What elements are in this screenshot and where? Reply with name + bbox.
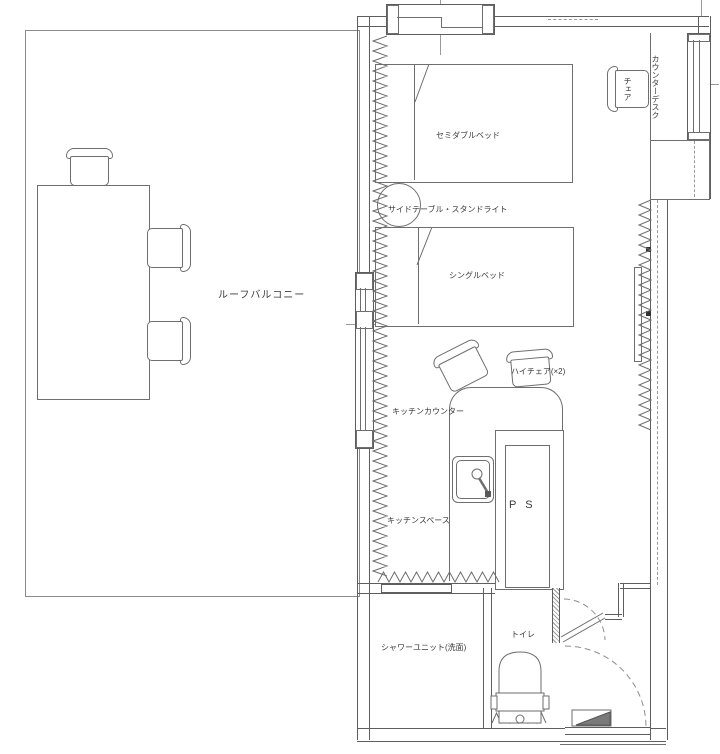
window-pane-line xyxy=(397,17,441,18)
entry-step-outline xyxy=(572,710,611,726)
kitchen-sink xyxy=(452,456,494,503)
outlet-dot xyxy=(646,247,651,252)
toilet-door-leaf xyxy=(561,613,605,642)
label-semi-double-bed: セミダブルベッド xyxy=(436,131,500,141)
entry-outer-line xyxy=(560,744,666,745)
label-high-chairs: ハイチェア(×2) xyxy=(511,367,565,377)
window-pane-line xyxy=(693,40,694,132)
outdoor-table xyxy=(37,185,150,400)
window-frame-cap xyxy=(387,5,399,34)
label-kitchen-space: キッチンスペース xyxy=(387,516,450,526)
window-pane-line xyxy=(365,327,366,430)
wall-axis-dash-top xyxy=(548,19,598,20)
label-shower-unit: シャワーユニット(洗面) xyxy=(381,643,466,653)
toilet-door-frame xyxy=(552,588,560,643)
toilet-door-swing-arc xyxy=(564,599,605,640)
wall-right-upper-a xyxy=(698,16,711,33)
wall-axis-dash-right xyxy=(657,200,658,585)
window-pane-line xyxy=(441,17,442,28)
chair-seat xyxy=(70,156,109,186)
entry-door-leaf xyxy=(565,727,650,735)
semi-double-bed xyxy=(375,64,573,183)
window-pane-line xyxy=(441,27,482,28)
break-zigzag-toilet xyxy=(492,713,546,723)
bed-pillow-line xyxy=(414,65,415,180)
storage-box xyxy=(650,140,710,200)
entrance-niche-wall-a xyxy=(620,583,650,589)
window-left-balcony xyxy=(355,272,374,449)
outdoor-chair-north xyxy=(66,148,113,186)
window-right xyxy=(687,33,711,141)
toilet-knob xyxy=(516,715,524,723)
toilet-seat-tab xyxy=(543,696,549,709)
toilet-seat-bar xyxy=(496,693,544,711)
label-roof-balcony: ルーフバルコニー xyxy=(218,291,305,301)
outlet-dot xyxy=(646,311,651,316)
curtain-rail xyxy=(634,267,642,362)
label-counter-desk: カウンターデスク xyxy=(651,55,660,119)
toilet-base xyxy=(499,711,541,723)
window-pane-line xyxy=(360,327,361,430)
entrance-niche-wall-b xyxy=(618,583,624,617)
label-single-bed: シングルベッド xyxy=(449,271,505,281)
chair-seat xyxy=(147,228,183,268)
window-pane-line xyxy=(360,288,361,311)
wall-right-lower xyxy=(650,198,668,740)
centerline-top-right xyxy=(701,0,702,16)
floor-plan: セミダブルベッド サイドテーブル・スタンドライト シングルベッド ハイチェア(×… xyxy=(0,0,720,754)
wall-shower-toilet xyxy=(483,588,492,728)
label-pipe-space: P S xyxy=(509,500,536,510)
window-frame-cap xyxy=(356,430,373,448)
pipe-space-inner xyxy=(505,445,550,588)
window-pane-line xyxy=(699,40,700,132)
window-top xyxy=(386,4,495,35)
outdoor-chair-east-2 xyxy=(147,317,191,365)
window-frame-cap xyxy=(688,132,710,140)
chair-seat xyxy=(147,321,183,361)
bed-pillow-line xyxy=(418,228,419,324)
outdoor-chair-east-1 xyxy=(147,224,191,272)
label-side-table-stand-light: サイドテーブル・スタンドライト xyxy=(388,205,508,215)
window-pane-line xyxy=(365,288,366,311)
entry-door-swing-arc xyxy=(565,646,646,727)
storage-centerline xyxy=(694,141,695,197)
entrance-niche-wall-c xyxy=(605,614,622,620)
shower-door-threshold xyxy=(381,584,452,593)
label-desk-chair: チェア xyxy=(623,77,632,101)
label-kitchen-counter: キッチンカウンター xyxy=(392,407,464,417)
toilet-bowl xyxy=(499,652,541,704)
kitchen-sink-inner xyxy=(456,460,490,499)
chair-seat xyxy=(615,70,649,108)
entry-step-triangle xyxy=(576,712,610,725)
window-frame-cap xyxy=(482,5,494,34)
label-toilet: トイレ xyxy=(511,630,535,640)
